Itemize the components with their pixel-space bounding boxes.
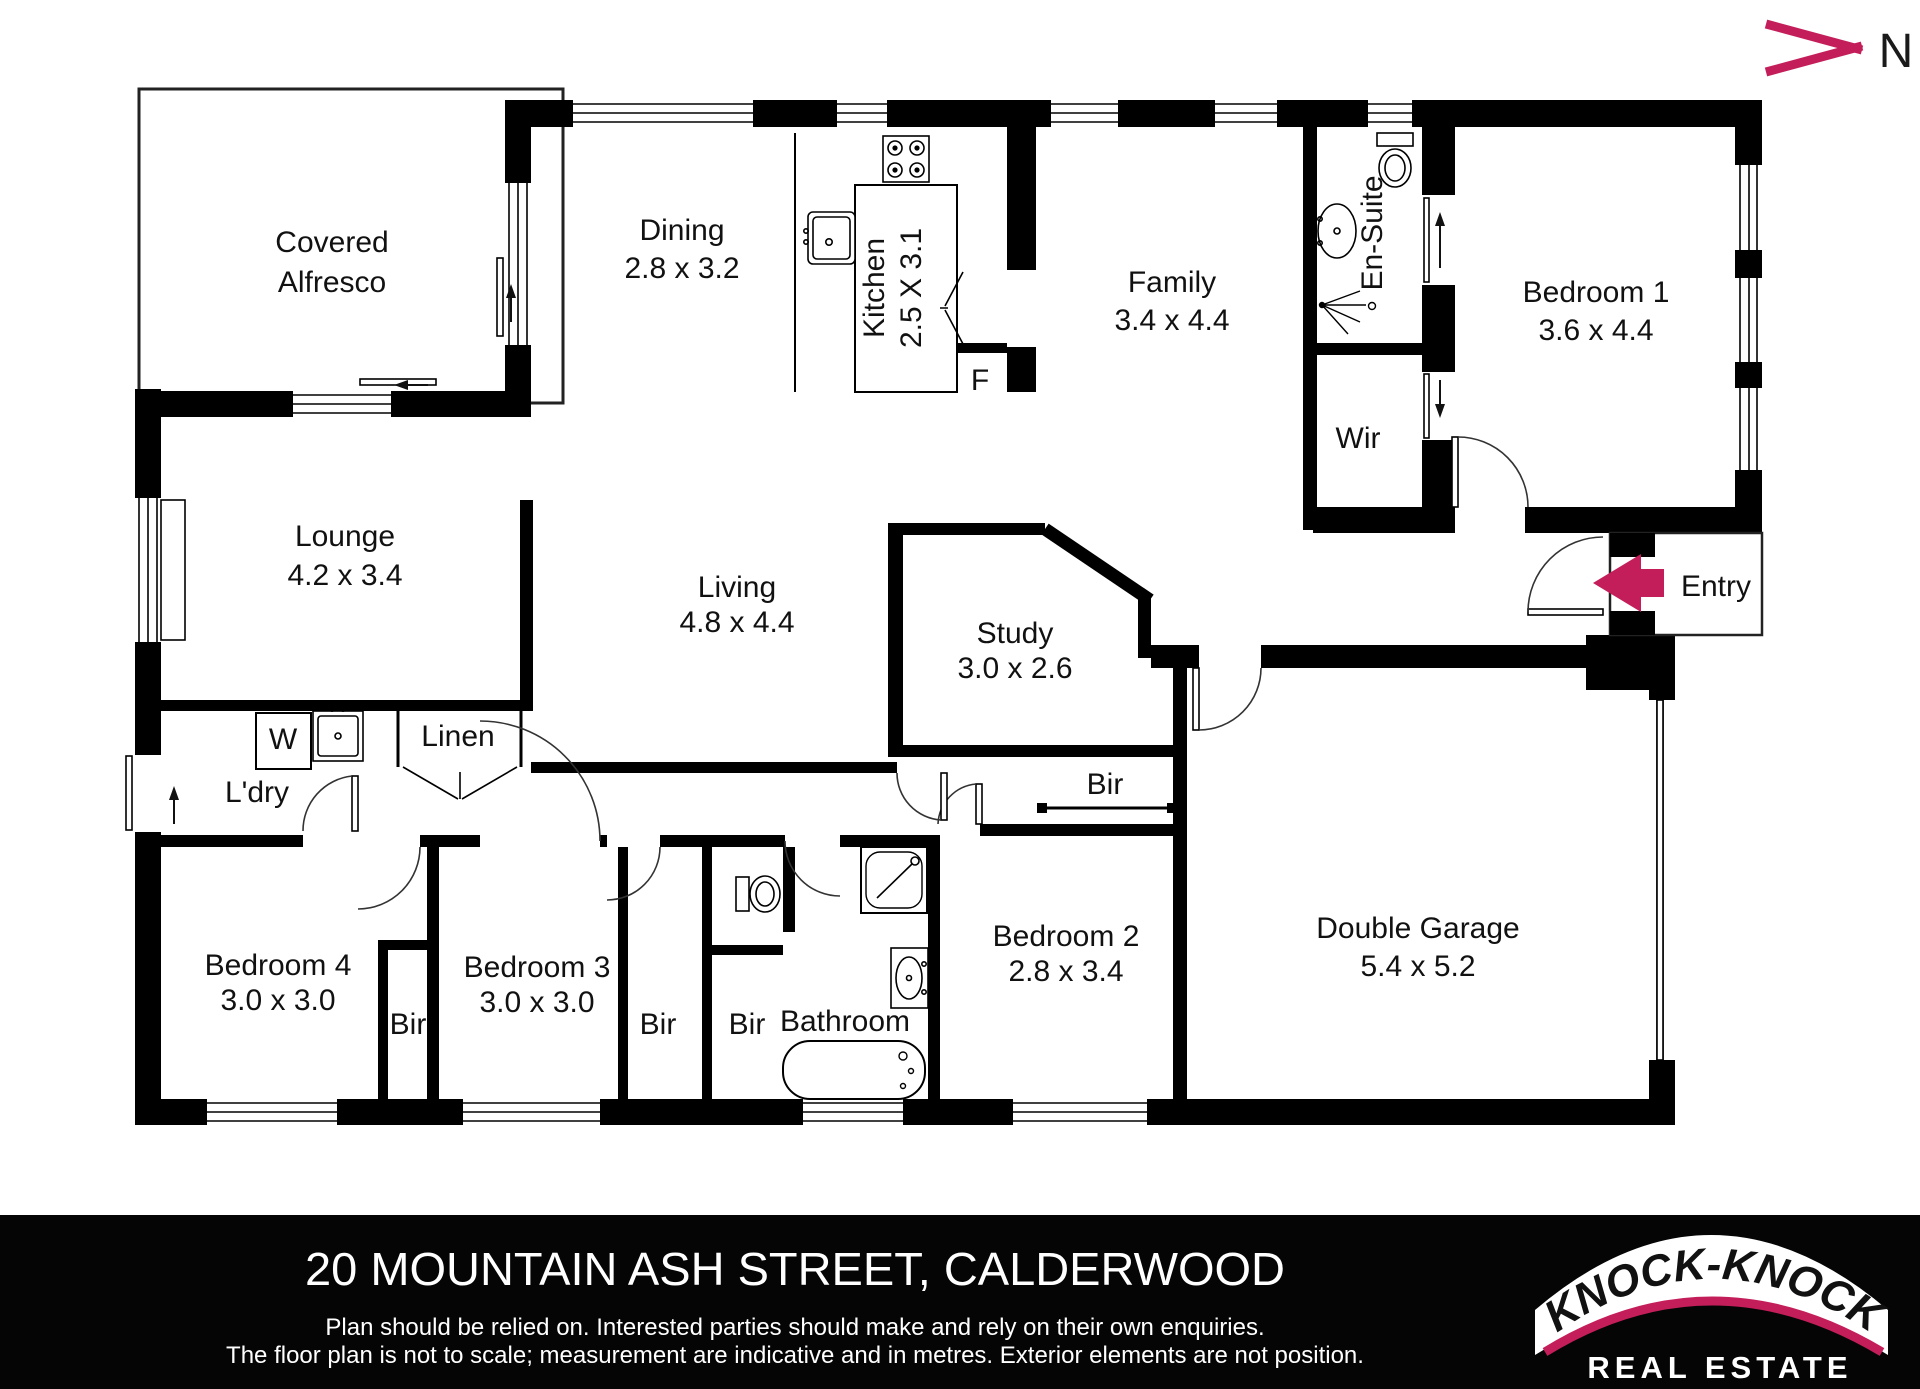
label-ensuite: En-Suite xyxy=(1356,175,1389,290)
label-bir-bed3: Bir xyxy=(640,1008,677,1041)
study-angled-wall xyxy=(1045,529,1150,600)
arrow-up-icon xyxy=(169,786,179,824)
label-alfresco: Covered xyxy=(275,226,388,259)
label-wir: Wir xyxy=(1336,422,1381,455)
door-bedroom1 xyxy=(1452,437,1528,507)
address-title: 20 MOUNTAIN ASH STREET, CALDERWOOD xyxy=(305,1243,1285,1295)
wall-segment xyxy=(840,835,938,847)
door-front xyxy=(1528,537,1603,615)
wall-segment xyxy=(1173,668,1187,1099)
door-opening xyxy=(1455,507,1525,533)
wall-segment xyxy=(505,100,531,183)
label-bedroom2: Bedroom 2 xyxy=(993,920,1140,953)
wall-segment xyxy=(1586,635,1675,690)
label-washer: W xyxy=(269,723,298,756)
linen-doors xyxy=(403,767,517,799)
wall-segment xyxy=(702,945,783,955)
wall-segment xyxy=(618,847,628,1099)
wall-segment xyxy=(660,835,703,847)
slider-panel xyxy=(1424,198,1429,282)
window xyxy=(1735,278,1762,362)
window xyxy=(803,1099,903,1125)
label-garage: Double Garage xyxy=(1316,912,1519,945)
window xyxy=(1051,100,1118,127)
label-dining-dims: 2.8 x 3.2 xyxy=(624,252,739,285)
slider-panel xyxy=(497,258,503,336)
label-bathroom: Bathroom xyxy=(780,1005,910,1038)
label-fridge: F xyxy=(971,364,989,397)
label-bedroom2-dims: 2.8 x 3.4 xyxy=(1008,955,1123,988)
wall-segment xyxy=(520,500,533,711)
label-bir-bath: Bir xyxy=(729,1008,766,1041)
door-hall-bedwing xyxy=(480,721,600,841)
door-bedroom3 xyxy=(607,847,660,900)
window xyxy=(1215,100,1277,127)
label-kitchen-dims: 2.5 X 3.1 xyxy=(895,228,928,348)
basin-icon xyxy=(1318,204,1356,258)
label-lounge-dims: 4.2 x 3.4 xyxy=(287,559,402,592)
wall-segment xyxy=(1610,533,1655,557)
label-study: Study xyxy=(977,617,1054,650)
window xyxy=(1013,1099,1147,1125)
north-label: N xyxy=(1879,25,1914,78)
wall-segment xyxy=(1303,343,1432,355)
slider-panel xyxy=(1424,374,1429,438)
label-bedroom4: Bedroom 4 xyxy=(205,949,352,982)
slider-panel xyxy=(126,756,132,830)
label-linen: Linen xyxy=(421,720,494,753)
vanity-icon xyxy=(891,948,928,1008)
wall-segment xyxy=(378,940,388,1099)
shower-head-icon xyxy=(1320,291,1376,334)
sliding-door-window xyxy=(293,391,391,417)
wall-segment xyxy=(1007,347,1036,392)
wall-segment xyxy=(531,762,897,773)
shower-icon xyxy=(861,847,927,913)
label-bir-study: Bir xyxy=(1087,768,1124,801)
toilet-icon xyxy=(736,876,780,912)
label-bedroom4-dims: 3.0 x 3.0 xyxy=(220,984,335,1017)
wall-segment xyxy=(161,835,303,847)
wall-segment xyxy=(135,391,293,417)
wall-segment xyxy=(427,847,439,1099)
disclaimer-line1: Plan should be relied on. Interested par… xyxy=(325,1314,1264,1341)
wall-segment xyxy=(1610,611,1655,635)
window xyxy=(1735,388,1762,470)
label-lounge: Lounge xyxy=(295,520,395,553)
label-garage-dims: 5.4 x 5.2 xyxy=(1360,950,1475,983)
wall-segment xyxy=(420,835,480,847)
garage-roller-door xyxy=(1657,700,1663,1060)
window xyxy=(573,100,753,127)
wall-segment xyxy=(783,847,795,932)
label-living: Living xyxy=(698,571,776,604)
wall-segment xyxy=(391,391,531,417)
window xyxy=(463,1099,600,1125)
label-living-dims: 4.8 x 4.4 xyxy=(679,606,794,639)
wall-segment xyxy=(888,523,1045,535)
wall-segment xyxy=(980,824,1173,836)
sliding-door-window xyxy=(135,755,161,832)
cooktop-icon xyxy=(883,136,929,182)
wall-segment xyxy=(703,835,785,847)
label-family: Family xyxy=(1128,266,1216,299)
window xyxy=(1368,100,1412,127)
window xyxy=(1735,165,1762,250)
wall-segment xyxy=(161,700,531,711)
sliding-door-window xyxy=(505,183,531,345)
window xyxy=(837,100,887,127)
wall-segment xyxy=(1007,126,1036,270)
label-bedroom3: Bedroom 3 xyxy=(464,951,611,984)
disclaimer-line2: The floor plan is not to scale; measurem… xyxy=(226,1342,1364,1369)
floorplan-page: N xyxy=(0,0,1920,1389)
label-family-dims: 3.4 x 4.4 xyxy=(1114,304,1229,337)
label-dining: Dining xyxy=(639,214,724,247)
wall-segment xyxy=(135,1099,1675,1125)
wall-segment xyxy=(957,343,1007,353)
label-entry: Entry xyxy=(1681,570,1751,603)
label-kitchen: Kitchen xyxy=(858,238,891,338)
window xyxy=(135,498,185,642)
label-bir-bed4: Bir xyxy=(390,1008,427,1041)
wall-segment xyxy=(888,523,903,757)
wall-segment xyxy=(378,940,427,950)
laundry-sink-icon xyxy=(313,707,363,761)
wall-segment xyxy=(1422,126,1455,530)
north-arrow-icon xyxy=(1766,46,1862,72)
wall-segment xyxy=(600,835,607,847)
north-indicator: N xyxy=(1766,24,1913,78)
floorplan-canvas: N xyxy=(0,0,1920,1389)
label-study-dims: 3.0 x 2.6 xyxy=(957,652,1072,685)
bathtub-icon xyxy=(783,1041,925,1099)
door-laundry xyxy=(303,776,358,831)
wall-segment xyxy=(1151,645,1199,668)
logo-tagline: REAL ESTATE xyxy=(1587,1350,1852,1385)
kitchen-sink-icon xyxy=(804,212,855,264)
door-garage xyxy=(1193,668,1261,730)
label-bedroom1: Bedroom 1 xyxy=(1523,276,1670,309)
wall-segment xyxy=(1303,126,1317,530)
wall-segment xyxy=(928,835,940,1099)
label-bedroom1-dims: 3.6 x 4.4 xyxy=(1538,314,1653,347)
label-bedroom3-dims: 3.0 x 3.0 xyxy=(479,986,594,1019)
label-laundry: L'dry xyxy=(225,776,289,809)
door-bedroom4 xyxy=(358,847,420,909)
window xyxy=(207,1099,337,1125)
label-alfresco-2: Alfresco xyxy=(278,266,386,299)
wall-segment xyxy=(888,745,1178,757)
wall-segment xyxy=(702,847,712,1099)
